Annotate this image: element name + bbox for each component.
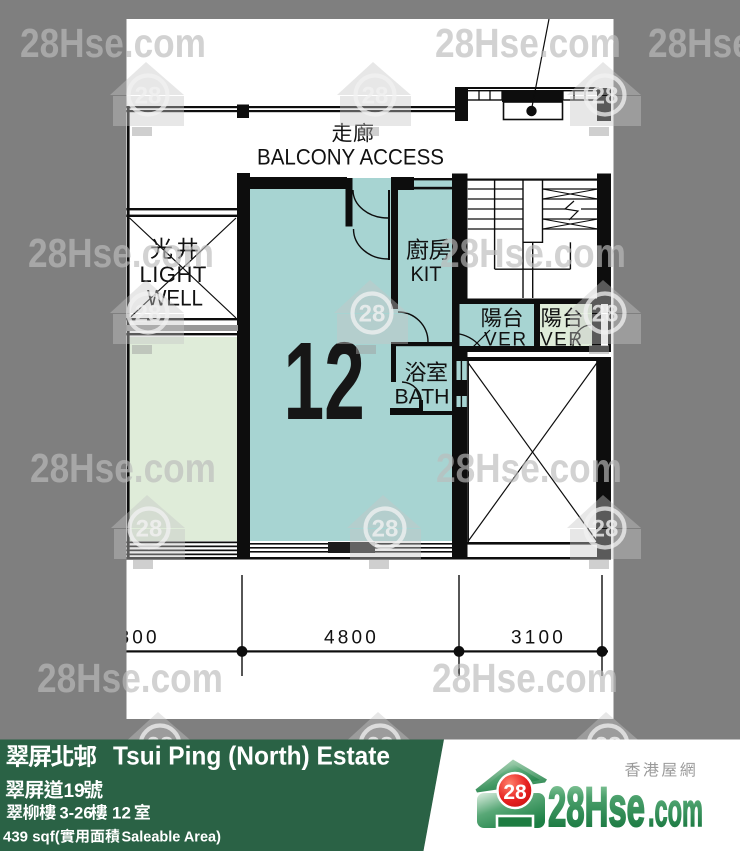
svg-text:BATH: BATH: [395, 385, 450, 409]
svg-text:28: 28: [592, 83, 619, 110]
svg-text:BALCONY ACCESS: BALCONY ACCESS: [257, 145, 444, 170]
svg-text:4800: 4800: [324, 628, 379, 649]
svg-text:KIT: KIT: [411, 263, 442, 286]
svg-text:28Hse.com: 28Hse.com: [432, 655, 618, 701]
svg-text:28Hse.com: 28Hse.com: [648, 20, 740, 66]
svg-text:19: 19: [64, 781, 85, 802]
svg-text:28Hse.com: 28Hse.com: [440, 230, 626, 276]
svg-text:28: 28: [372, 516, 399, 543]
svg-text:Tsui Ping (North) Estate: Tsui Ping (North) Estate: [113, 741, 390, 771]
svg-text:28Hse.com: 28Hse.com: [37, 655, 223, 701]
svg-text:28Hse: 28Hse: [548, 775, 645, 838]
svg-text:VER: VER: [484, 330, 528, 351]
svg-text:28: 28: [359, 301, 386, 328]
svg-text:12: 12: [112, 804, 131, 823]
svg-text:28: 28: [362, 83, 389, 110]
svg-text:28: 28: [503, 781, 527, 804]
svg-text:Saleable Area): Saleable Area): [122, 830, 222, 846]
svg-text:28: 28: [135, 301, 162, 328]
svg-text:439 sqf(: 439 sqf(: [3, 829, 60, 846]
svg-text:28Hse.com: 28Hse.com: [436, 445, 622, 491]
svg-text:3-26: 3-26: [60, 805, 93, 823]
svg-text:3100: 3100: [511, 628, 566, 649]
svg-text:.com: .com: [648, 784, 703, 836]
svg-text:28Hse.com: 28Hse.com: [30, 445, 216, 491]
svg-text:28Hse.com: 28Hse.com: [20, 20, 206, 66]
svg-text:28Hse.com: 28Hse.com: [28, 230, 214, 276]
svg-text:28Hse.com: 28Hse.com: [435, 20, 621, 66]
svg-text:28: 28: [136, 516, 163, 543]
svg-text:28: 28: [135, 83, 162, 110]
svg-text:28: 28: [592, 516, 619, 543]
svg-text:28: 28: [592, 301, 619, 328]
